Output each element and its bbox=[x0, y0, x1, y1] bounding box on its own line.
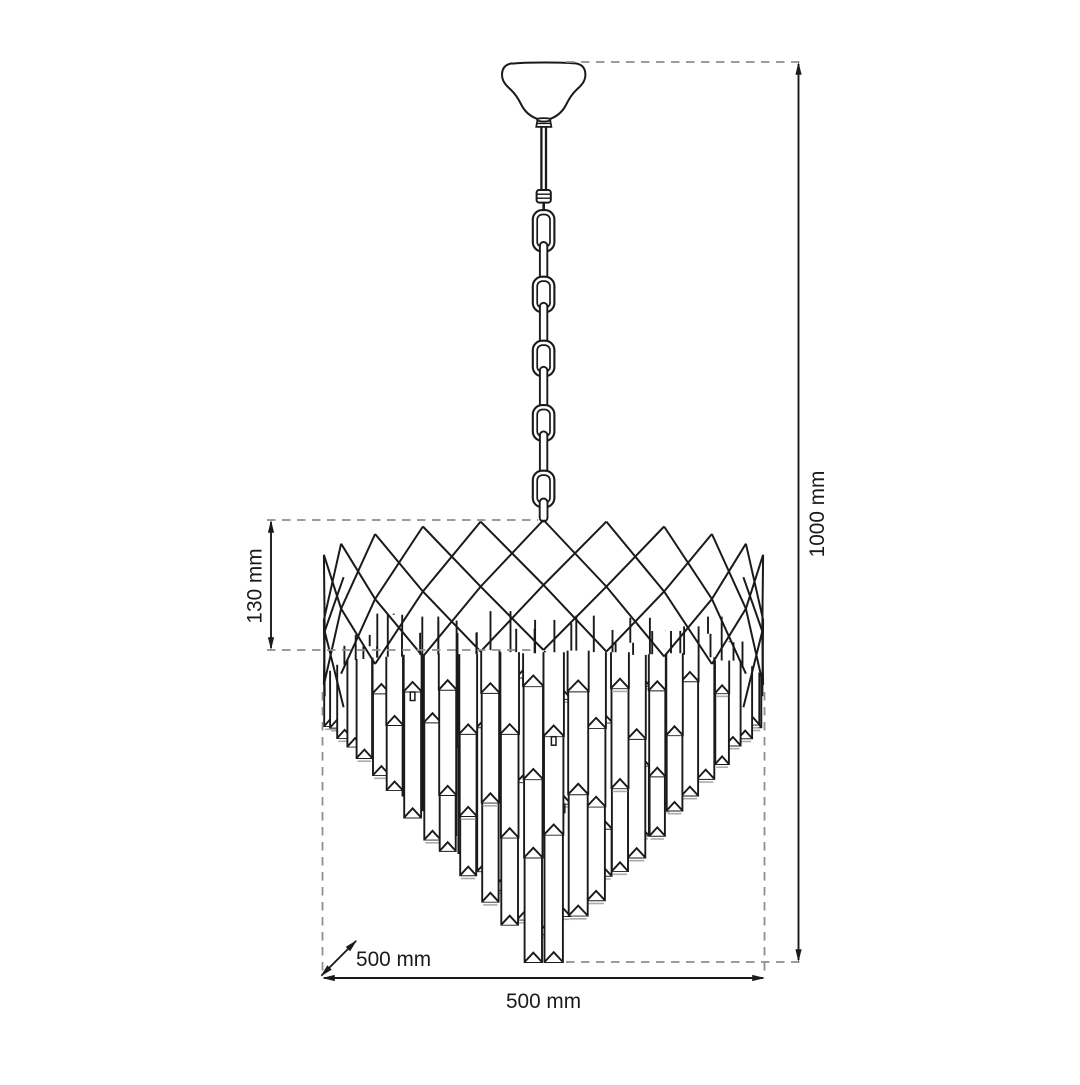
svg-text:130 mm: 130 mm bbox=[244, 548, 267, 623]
svg-text:500 mm: 500 mm bbox=[356, 948, 431, 971]
svg-text:500 mm: 500 mm bbox=[506, 990, 581, 1013]
svg-text:1000 mm: 1000 mm bbox=[806, 471, 829, 558]
